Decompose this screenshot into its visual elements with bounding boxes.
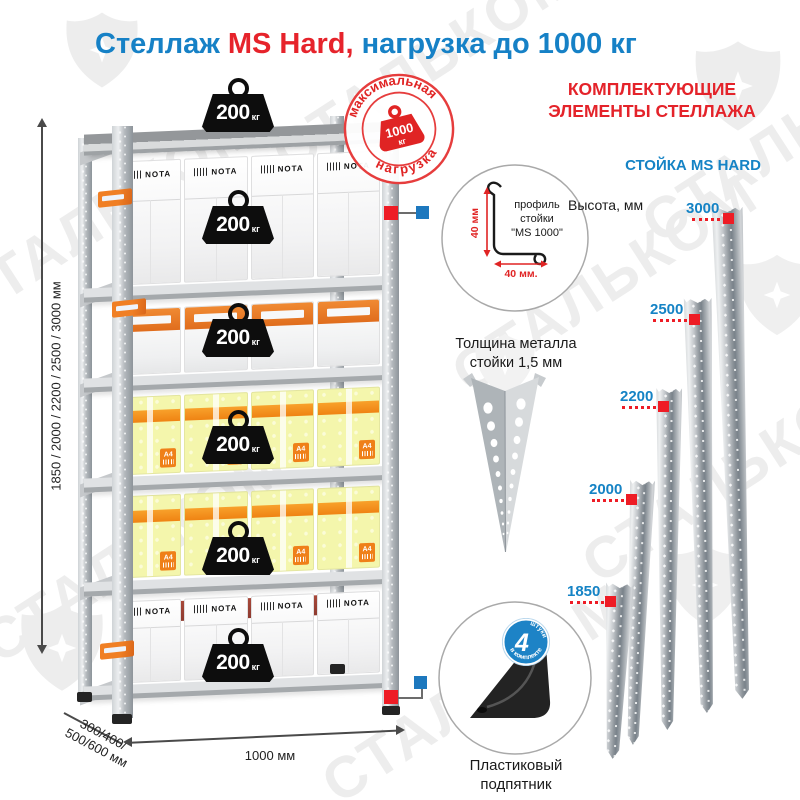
callout-red-marker [384,206,398,220]
box-strap [147,397,153,473]
callout-red-marker [384,690,398,704]
barcode-icon [194,168,207,177]
page-title: Стеллаж MS Hard, нагрузка до 1000 кг [95,28,637,61]
rack-post-front-left [112,126,133,718]
red-square-marker [658,401,669,412]
weight-unit: кг [252,555,260,565]
height-dimension-line [41,120,43,652]
post-profile-diagram: 40 мм 40 мм. профиль стойки "MS 1000" [440,163,590,313]
weight-unit: кг [252,337,260,347]
post-perforation [112,126,133,718]
stamp-weight-ring [389,106,401,118]
box-label: NOTA [185,603,246,615]
box-label: NOTA [252,600,313,612]
shield-logo-watermark-icon [14,600,110,696]
components-subheading: СТОЙКА MS HARD [600,157,786,174]
barcode-icon [194,605,207,614]
barcode-icon [327,162,340,171]
components-heading: КОМПЛЕКТУЮЩИЕЭЛЕМЕНТЫ СТЕЛЛАЖА [545,78,759,122]
barcode-icon [327,599,340,608]
profile-caption-line1: Толщина металла [455,336,576,352]
red-square-marker [626,494,637,505]
box-seam [348,618,349,672]
box-label: NOTA [252,163,313,175]
box-brand-text: NOTA [145,169,171,179]
post-crease [505,391,506,552]
red-square-marker [689,314,700,325]
box-seam [150,200,151,283]
box-band-label [327,307,370,317]
quantity-badge: 4 штуки в комплекте [502,618,550,666]
dotted-leader [653,319,687,322]
plastic-foot-hole [477,707,487,713]
a4-text: A4 [164,451,173,458]
a4-text: A4 [363,546,372,553]
callout-line [421,689,423,699]
rack-post-back-left [78,138,92,694]
rack-foot [77,692,92,702]
post-height-label-2500: 2500 [650,301,683,318]
plastic-foot-caption: Пластиковыйподпятник [430,756,602,794]
box-a4-paper: A4 [317,387,380,468]
box-seam [150,627,151,681]
components-heading-line1: КОМПЛЕКТУЮЩИЕ [568,79,736,99]
barcode-icon [261,165,274,174]
box-strap [346,488,352,568]
arrow-left-icon [123,737,132,747]
weight-value: 200 [216,213,250,237]
weight-body: 200кг [202,94,274,132]
post-height-label-1850: 1850 [567,583,600,600]
a4-label: A4 [293,545,309,565]
dotted-leader [592,499,624,502]
box-brand-text: NOTA [344,598,370,608]
post-height-label-2200: 2200 [620,388,653,405]
box-band-label [128,315,171,325]
arrow-up-icon [37,118,47,127]
weight-200kg: 200кг [202,521,274,575]
dotted-leader [692,218,720,221]
title-part-3: нагрузка до 1000 кг [354,28,637,60]
weight-value: 200 [216,101,250,125]
post-height-label-2000: 2000 [589,481,622,498]
sticker-label [102,194,124,201]
barcode-icon [163,562,174,567]
weight-unit: кг [252,224,260,234]
box-seam [348,192,349,275]
box-orange-band [318,300,379,325]
weight-200kg: 200кг [202,190,274,244]
a4-text: A4 [164,554,173,561]
weight-200kg: 200кг [202,628,274,682]
box-seam [282,621,283,675]
dotted-leader [570,601,604,604]
rack-foot [382,706,400,715]
arrow-right-icon [396,725,405,735]
profile-label-line2: стойки [520,213,554,225]
a4-text: A4 [363,443,372,450]
width-dimension-label: 1000 мм [230,748,310,763]
dotted-leader [622,406,656,409]
box-a4-paper: A4 [317,486,380,571]
foot-caption-line1: Пластиковый [470,757,563,774]
box-seam [282,195,283,278]
weight-body: 200кг [202,319,274,357]
barcode-icon [362,451,373,456]
box-strap [346,389,352,465]
post-perforation [78,138,92,694]
red-square-marker [723,213,734,224]
weight-body: 200кг [202,537,274,575]
profile-horizontal-dim-label: 40 мм. [504,268,537,280]
post-height-label-3000: 3000 [686,200,719,217]
a4-label: A4 [359,543,375,563]
box-brand-text: NOTA [211,603,237,613]
a4-text: A4 [296,446,305,453]
weight-value: 200 [216,544,250,568]
profile-vertical-dim-label: 40 мм [469,208,481,238]
weight-body: 200кг [202,644,274,682]
barcode-icon [362,554,373,559]
barcode-icon [295,557,306,562]
box-strap [280,490,286,570]
sticker-label [116,304,138,311]
foot-caption-line2: подпятник [480,776,551,793]
box-label: NOTA [185,166,246,178]
title-part-2: MS Hard, [228,28,354,60]
profile-label-line3: "MS 1000" [511,227,563,239]
callout-line [396,212,418,214]
box-strap [280,391,286,467]
box-brand-text: NOTA [145,606,171,616]
rack-foot [330,664,345,674]
weight-200kg: 200кг [202,78,274,132]
box-strap [147,496,153,576]
a4-text: A4 [296,549,305,556]
box-brand-text: NOTA [211,166,237,176]
weight-unit: кг [252,444,260,454]
weight-unit: кг [252,662,260,672]
a4-label: A4 [160,551,176,571]
weight-body: 200кг [202,426,274,464]
box-orange-top [317,299,380,368]
weight-unit: кг [252,112,260,122]
weight-200kg: 200кг [202,410,274,464]
box-nota: NOTA [317,591,380,676]
a4-label: A4 [293,442,309,462]
box-label: NOTA [318,597,379,609]
height-dimension-label: 1850 / 2000 / 2200 / 2500 / 3000 мм [49,281,64,490]
weight-value: 200 [216,651,250,675]
title-part-1: Стеллаж [95,28,228,60]
callout-blue-marker [414,676,427,689]
a4-label: A4 [160,448,176,468]
max-load-stamp: максимальная нагрузка 1000 кг [342,72,456,186]
callout-blue-marker [416,206,429,219]
rack-foot [112,714,132,724]
barcode-icon [295,454,306,459]
red-square-marker [605,596,616,607]
height-column-label: Высота, мм [568,197,643,213]
box-brand-text: NOTA [278,600,304,610]
barcode-icon [261,602,274,611]
weight-200kg: 200кг [202,303,274,357]
box-brand-text: NOTA [278,163,304,173]
callout-line [398,697,423,699]
weight-value: 200 [216,326,250,350]
weight-value: 200 [216,433,250,457]
a4-label: A4 [359,440,375,460]
sticker-label [104,646,126,653]
barcode-icon [163,459,174,464]
profile-label-line1: профиль [514,199,560,211]
components-heading-line2: ЭЛЕМЕНТЫ СТЕЛЛАЖА [548,101,756,121]
weight-body: 200кг [202,206,274,244]
infographic-canvas: СТАЛЬКОМ СТАЛЬКОМ СТАЛЬКОМ СТАЛЬКОМ СТАЛ… [0,0,800,800]
post-photo [450,366,562,566]
arrow-down-icon [37,645,47,654]
